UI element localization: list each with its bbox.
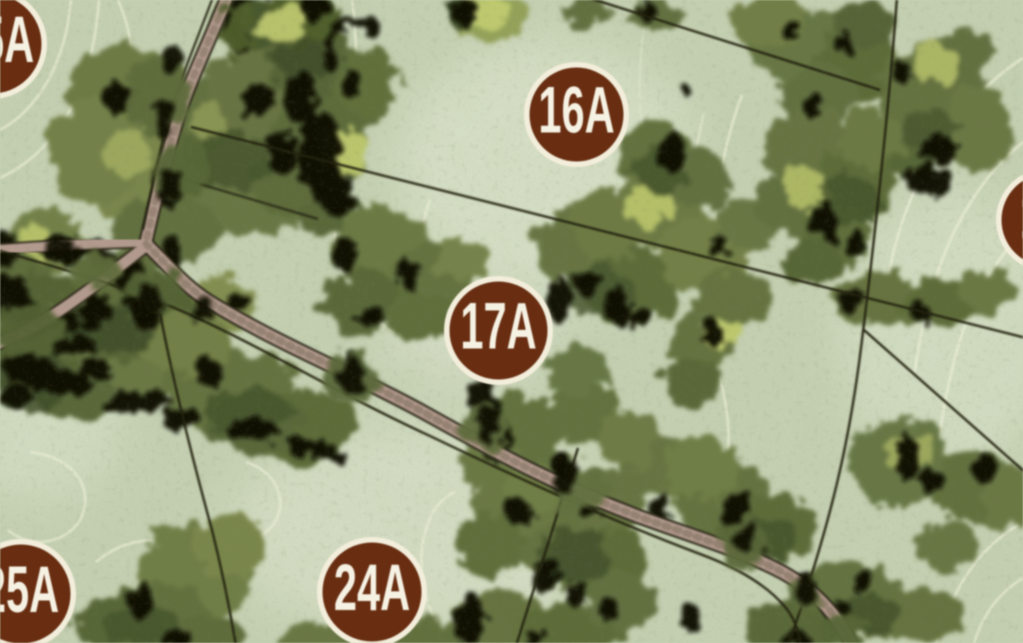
svg-text:24A: 24A [334,550,410,624]
svg-text:16A: 16A [538,73,614,147]
svg-text:15A: 15A [0,2,34,76]
svg-text:17A: 17A [460,289,536,363]
svg-text:25A: 25A [0,552,59,626]
